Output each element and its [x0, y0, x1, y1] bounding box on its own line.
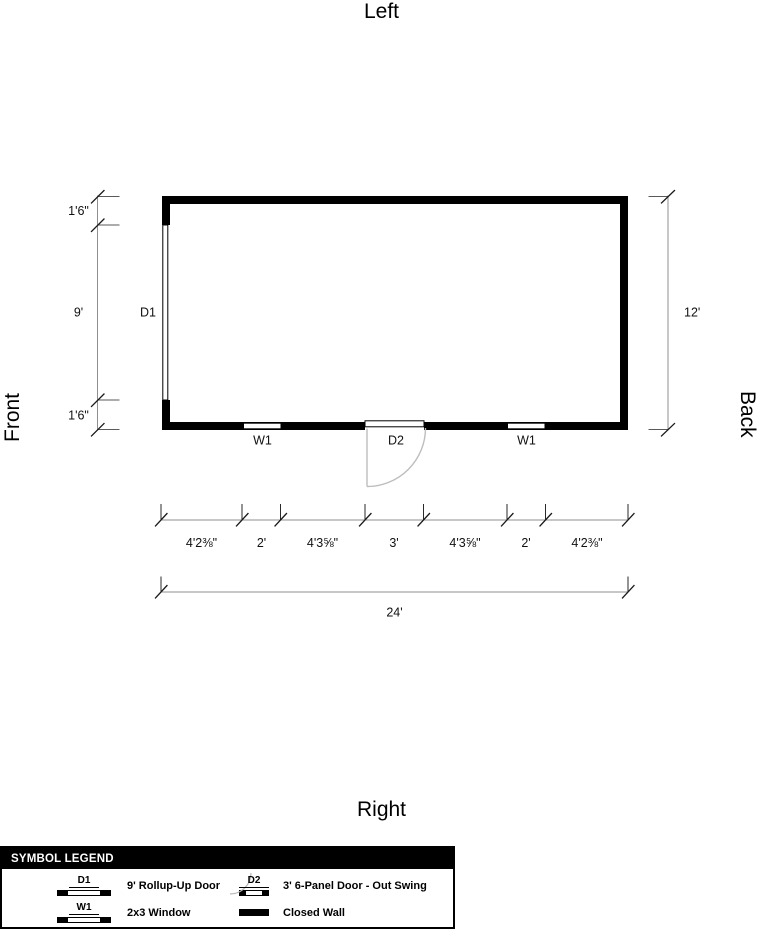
floor-plan-drawing: D1 W1 D2 W1 1'6" 9' 1'6" 12' 4'2⅜" 2' 4': [0, 0, 763, 650]
door-d1-symbol: [163, 225, 168, 400]
dim-left-top: 1'6": [68, 204, 89, 218]
symbol-legend: SYMBOL LEGEND D1 9' Rollup-Up Door D2 3'…: [0, 846, 455, 929]
label-d2: D2: [388, 434, 404, 448]
dim-seg-3: 4'3⅝": [307, 536, 338, 550]
openings: [163, 225, 545, 487]
label-w1-left: W1: [253, 434, 272, 448]
wall-top: [162, 196, 628, 204]
floorplan-page: Left Front Back Right D1 W1 D2 W1: [0, 0, 763, 929]
legend-symbol-w1: W1: [69, 902, 99, 915]
legend-item-closed-wall: Closed Wall: [229, 899, 453, 926]
dim-left-middle: 9': [74, 306, 83, 320]
legend-label-d1: 9' Rollup-Up Door: [127, 880, 220, 892]
legend-label-closed-wall: Closed Wall: [283, 907, 345, 919]
label-d1: D1: [140, 306, 156, 320]
dimension-bottom-total: 24': [156, 577, 635, 620]
legend-symbol-d1: D1: [69, 875, 99, 888]
window-w1-right: [508, 423, 546, 429]
window-icon: W1: [57, 902, 111, 924]
dim-left-bottom: 1'6": [68, 409, 89, 423]
dim-seg-4: 3': [389, 536, 398, 550]
door-d2-symbol: [365, 421, 424, 427]
dim-seg-2: 2': [257, 536, 266, 550]
window-w1-left: [244, 423, 282, 429]
legend-label-w1: 2x3 Window: [127, 907, 190, 919]
dim-seg-6: 2': [521, 536, 530, 550]
legend-item-w1: W1 2x3 Window: [2, 899, 229, 926]
closed-walls: [162, 196, 628, 430]
wall-right: [620, 196, 628, 430]
legend-symbol-d2: D2: [239, 875, 269, 888]
legend-label-d2: 3' 6-Panel Door - Out Swing: [283, 880, 427, 892]
rollup-door-icon: D1: [57, 875, 111, 897]
swing-door-icon: D2: [239, 875, 269, 897]
label-w1-right: W1: [517, 434, 536, 448]
legend-item-d1: D1 9' Rollup-Up Door: [2, 872, 229, 899]
dimension-right: 12': [649, 191, 700, 437]
dim-seg-5: 4'3⅝": [449, 536, 480, 550]
dim-bottom-total: 24': [386, 606, 402, 620]
legend-body: D1 9' Rollup-Up Door D2 3' 6-Panel Door …: [2, 869, 453, 926]
dim-seg-7: 4'2⅜": [571, 536, 602, 550]
dimension-left: 1'6" 9' 1'6": [68, 191, 119, 437]
dimension-bottom-segments: 4'2⅜" 2' 4'3⅝" 3' 4'3⅝" 2' 4'2⅜": [156, 505, 635, 551]
legend-item-d2: D2 3' 6-Panel Door - Out Swing: [229, 872, 453, 899]
wall-left-lower: [162, 400, 170, 430]
legend-title: SYMBOL LEGEND: [2, 848, 453, 869]
dim-right-total: 12': [684, 306, 700, 320]
wall-left-upper: [162, 196, 170, 225]
closed-wall-icon: [239, 909, 269, 916]
dim-seg-1: 4'2⅜": [186, 536, 217, 550]
orientation-label-right: Right: [0, 798, 763, 822]
